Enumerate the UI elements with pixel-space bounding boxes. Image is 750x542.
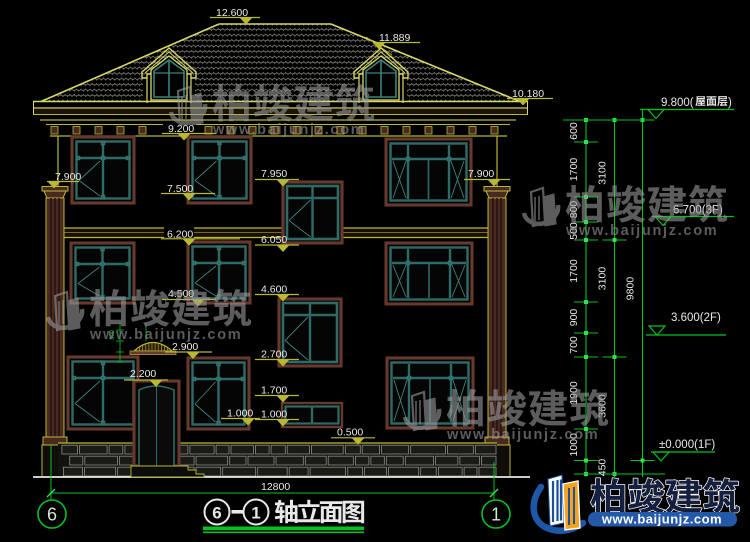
svg-text:www.baijunjz.com: www.baijunjz.com (601, 512, 722, 527)
svg-text:1.000: 1.000 (261, 409, 287, 421)
svg-text:6: 6 (212, 504, 221, 523)
svg-text:±0.000(1F): ±0.000(1F) (659, 439, 715, 451)
svg-text:700: 700 (568, 336, 580, 354)
svg-text:1.700: 1.700 (261, 385, 287, 397)
svg-text:4.600: 4.600 (261, 284, 287, 296)
svg-text:2.700: 2.700 (261, 349, 287, 361)
svg-text:1700: 1700 (568, 259, 580, 283)
svg-text:6.050: 6.050 (261, 234, 287, 246)
svg-text:2.200: 2.200 (130, 368, 156, 380)
svg-text:450: 450 (597, 459, 609, 477)
svg-text:9800: 9800 (625, 277, 637, 301)
svg-text:600: 600 (568, 122, 580, 140)
svg-text:3100: 3100 (597, 267, 609, 291)
svg-text:9.800(: 9.800( (661, 97, 694, 109)
svg-text:7.950: 7.950 (261, 168, 287, 180)
svg-text:1700: 1700 (568, 158, 580, 182)
svg-text:900: 900 (568, 309, 580, 327)
svg-text:3100: 3100 (597, 161, 609, 185)
svg-text:7.900: 7.900 (468, 168, 494, 180)
svg-text:1: 1 (491, 505, 501, 525)
svg-text:1: 1 (251, 504, 260, 523)
svg-text:0.500: 0.500 (337, 427, 363, 439)
svg-text:): ) (728, 97, 732, 109)
svg-text:3.600(2F): 3.600(2F) (671, 312, 721, 324)
svg-text:1.000: 1.000 (227, 408, 253, 420)
svg-text:12800: 12800 (261, 481, 290, 493)
svg-text:6: 6 (47, 505, 57, 525)
